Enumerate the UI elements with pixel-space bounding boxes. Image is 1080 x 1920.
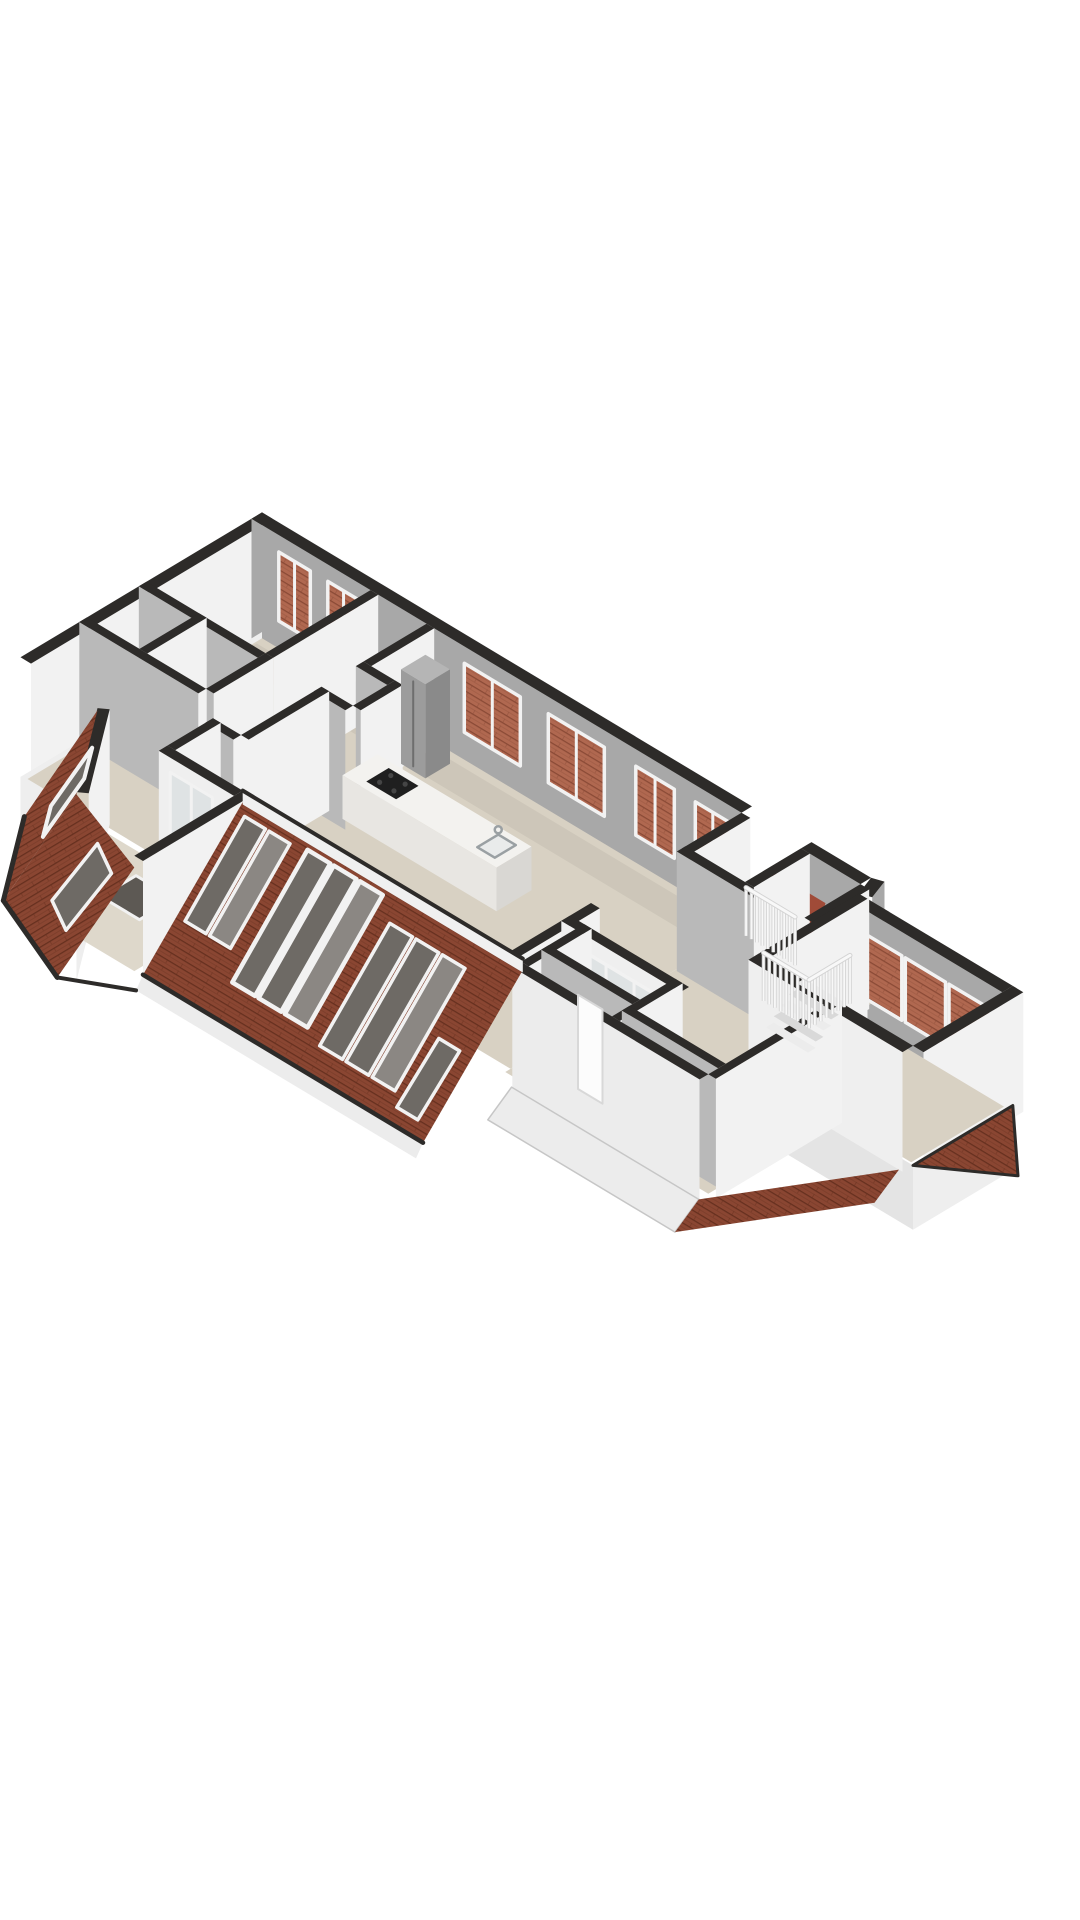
floorplan-3d-render	[0, 0, 1080, 1920]
burner-2	[403, 782, 408, 787]
eaves-connector	[57, 977, 136, 990]
floorplan-image	[0, 0, 1080, 1920]
fridge-side	[425, 669, 450, 778]
floorplan-page	[0, 0, 1080, 1920]
burner-1	[388, 773, 393, 778]
burner-3	[377, 780, 382, 785]
door-leaf	[578, 995, 603, 1104]
burner-4	[391, 788, 396, 793]
